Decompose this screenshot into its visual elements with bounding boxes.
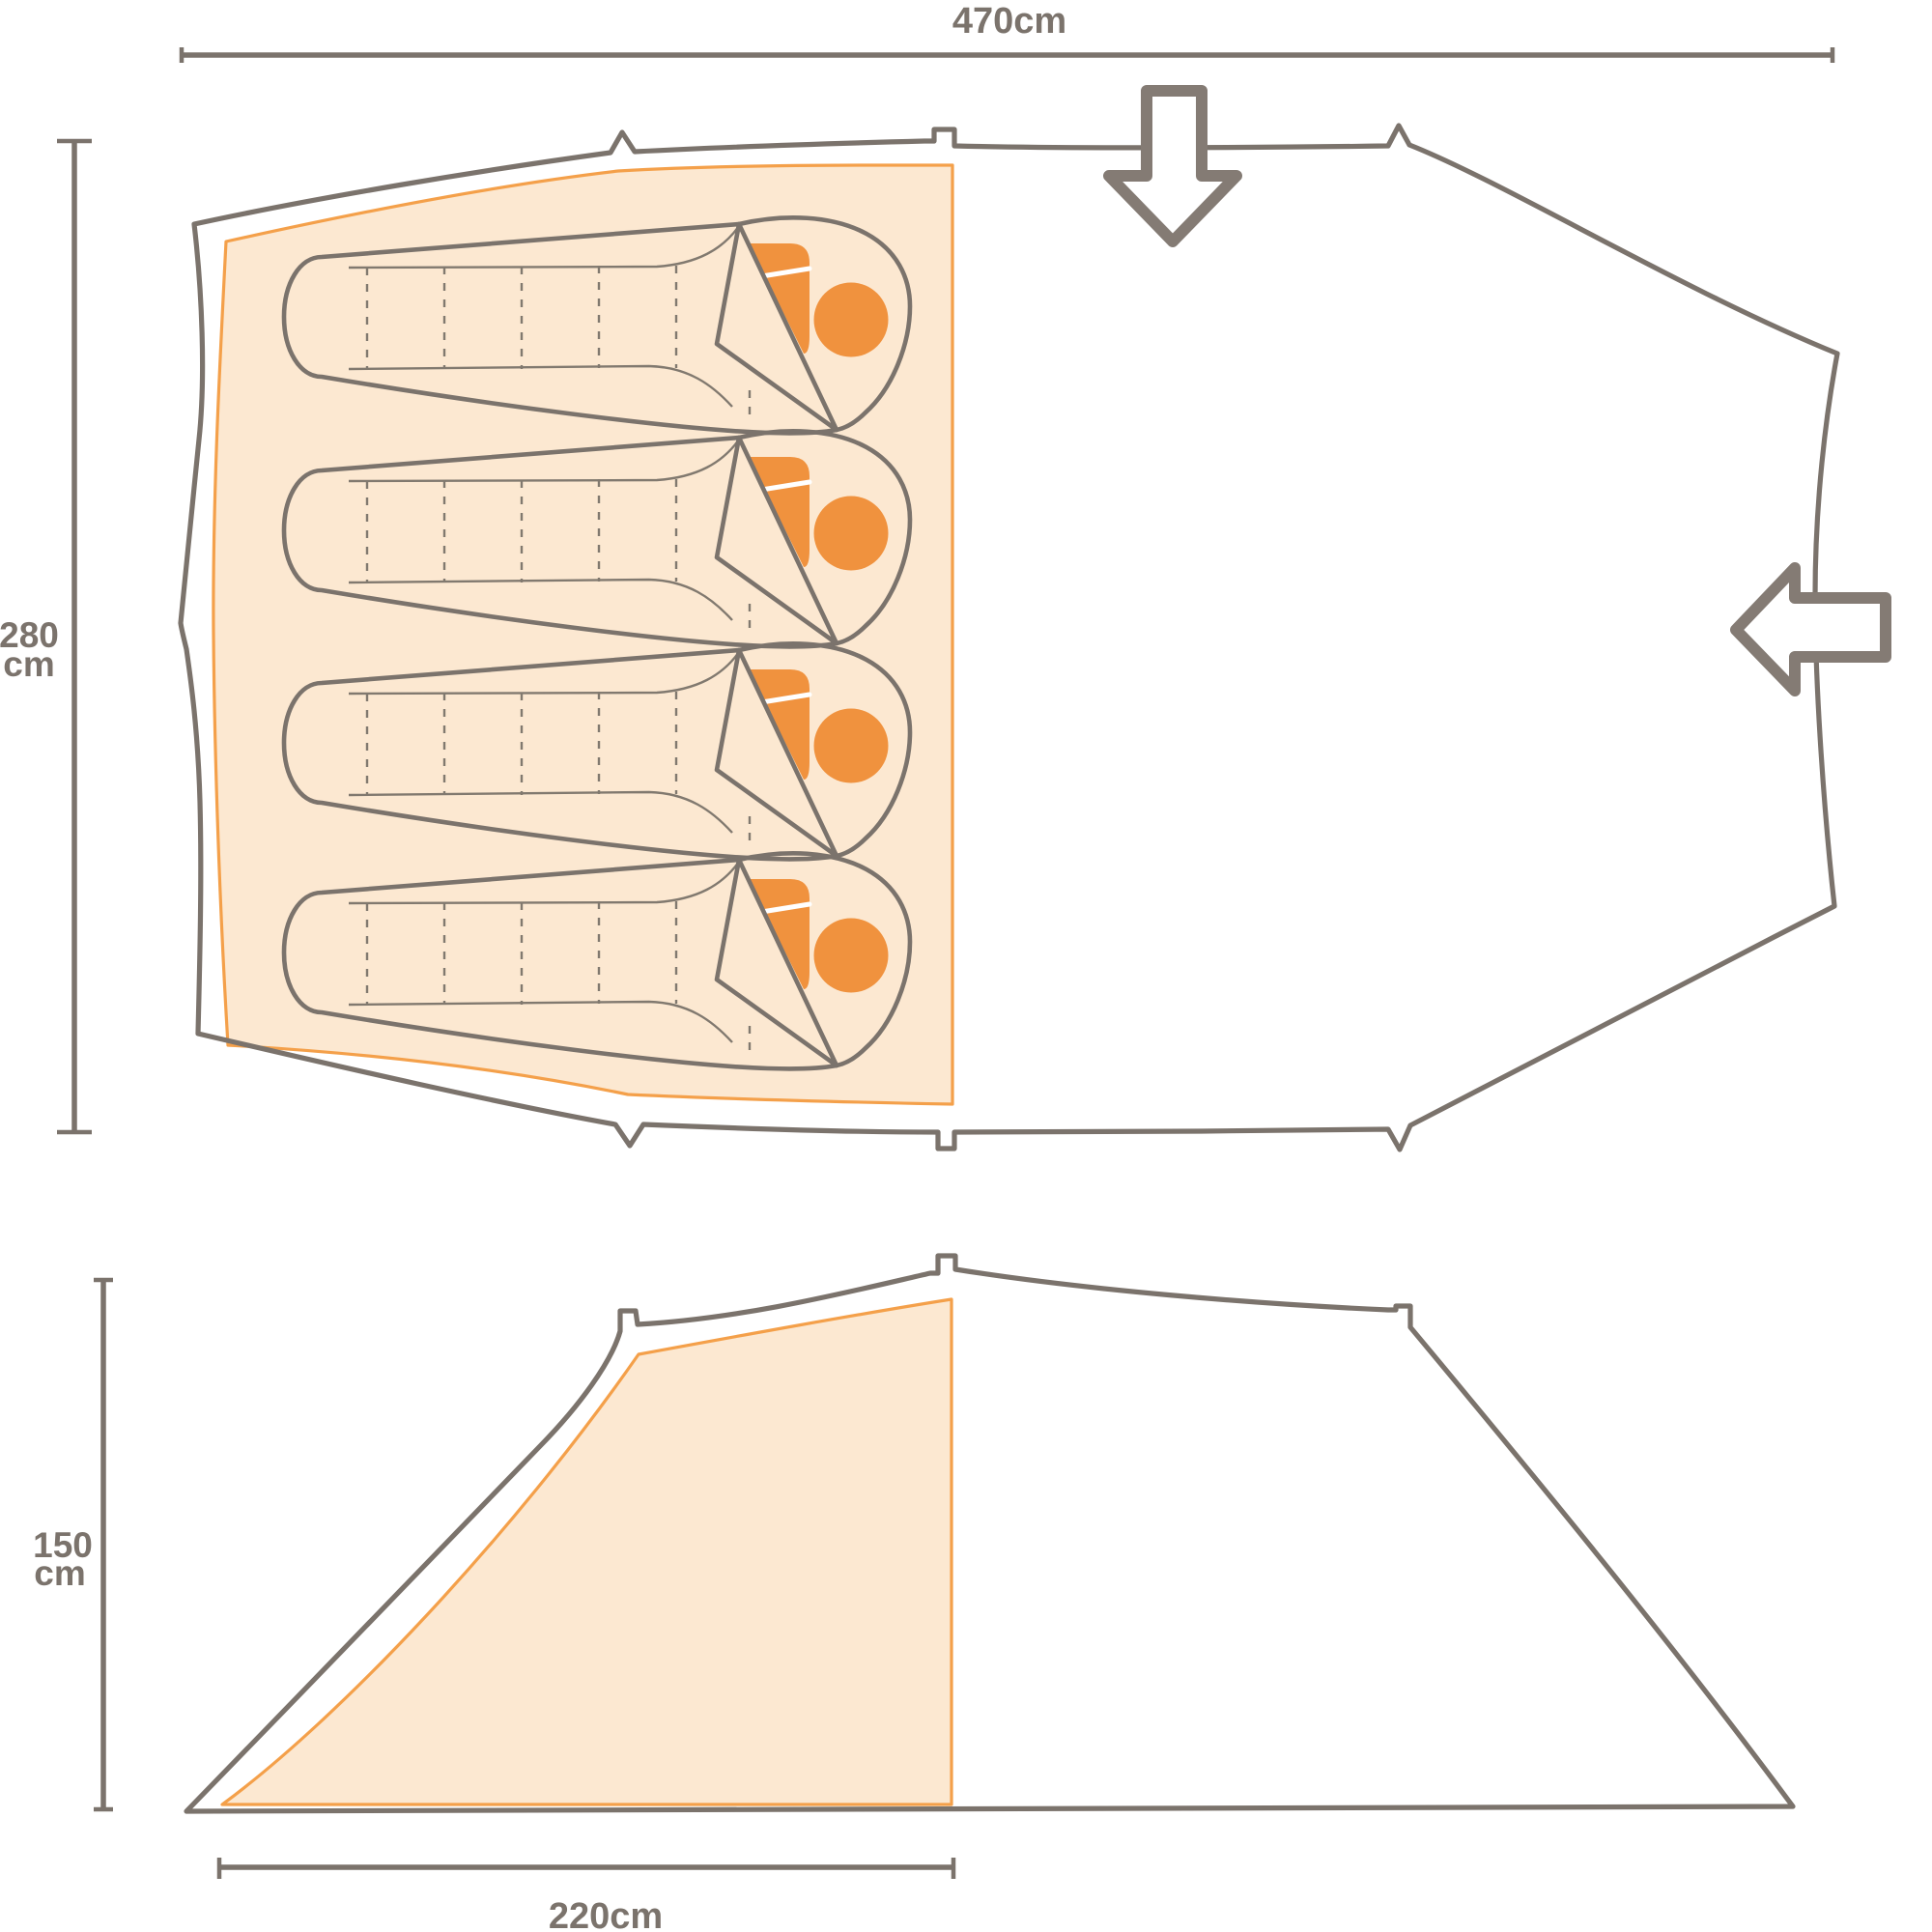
svg-text:cm: cm — [34, 1553, 85, 1593]
svg-text:220cm: 220cm — [549, 1896, 663, 1932]
svg-text:470cm: 470cm — [952, 1, 1066, 42]
svg-text:cm: cm — [3, 644, 54, 684]
